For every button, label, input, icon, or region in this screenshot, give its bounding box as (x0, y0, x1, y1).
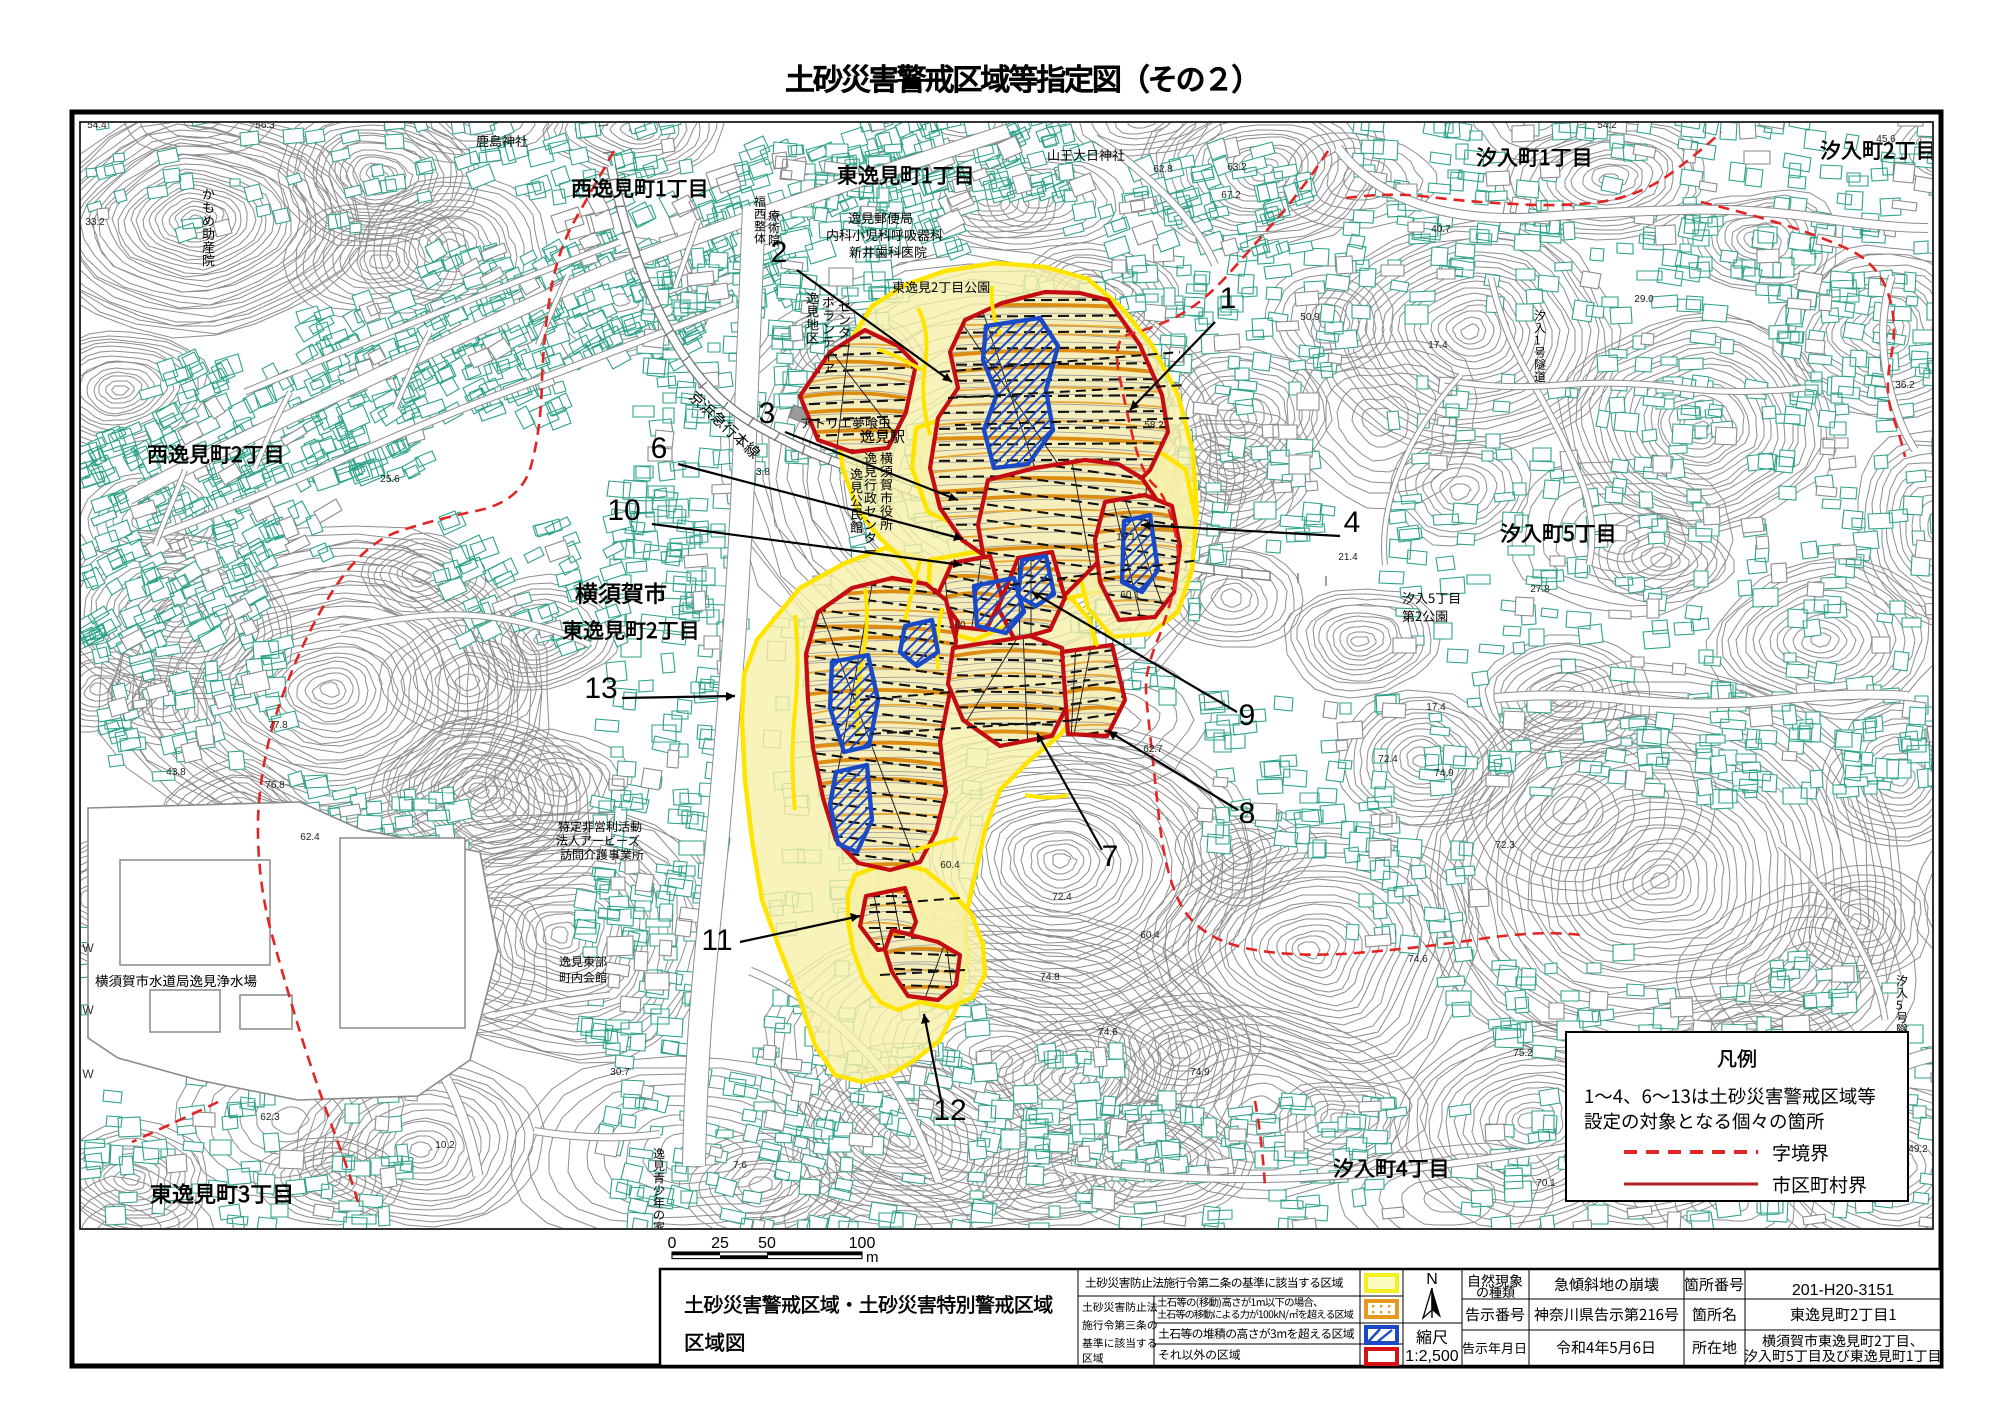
svg-text:201-H20-3151: 201-H20-3151 (1792, 1282, 1894, 1299)
svg-text:36.2: 36.2 (1895, 380, 1915, 391)
svg-text:77.8: 77.8 (268, 720, 288, 731)
svg-text:10: 10 (607, 494, 640, 527)
svg-text:8: 8 (1239, 797, 1256, 830)
svg-text:43.8: 43.8 (166, 767, 186, 778)
svg-text:70.1: 70.1 (1536, 1178, 1556, 1189)
svg-text:W: W (82, 941, 94, 955)
svg-text:62.3: 62.3 (260, 1112, 280, 1123)
svg-text:60.1: 60.1 (1120, 590, 1140, 601)
svg-text:76.8: 76.8 (265, 780, 285, 791)
svg-text:72.4: 72.4 (1378, 754, 1398, 765)
svg-text:W: W (82, 1067, 94, 1081)
svg-text:1: 1 (1220, 282, 1237, 315)
svg-text:62.7: 62.7 (1143, 744, 1163, 755)
svg-text:33.2: 33.2 (85, 217, 105, 228)
svg-text:72.3: 72.3 (1495, 840, 1515, 851)
svg-text:74.6: 74.6 (1098, 1027, 1118, 1038)
svg-text:60.4: 60.4 (1140, 930, 1160, 941)
svg-text:9: 9 (1239, 699, 1256, 732)
svg-text:50.9: 50.9 (1300, 312, 1320, 323)
svg-text:6: 6 (651, 432, 668, 465)
svg-text:62.4: 62.4 (300, 832, 320, 843)
svg-text:N: N (1426, 1271, 1438, 1288)
svg-text:m: m (866, 1249, 879, 1266)
svg-text:50: 50 (758, 1235, 776, 1252)
svg-text:21.4: 21.4 (1338, 552, 1358, 563)
svg-text:27.8: 27.8 (1530, 584, 1550, 595)
svg-text:67.2: 67.2 (1221, 190, 1241, 201)
svg-text:74.6: 74.6 (1408, 954, 1428, 965)
svg-text:74.9: 74.9 (1190, 1067, 1210, 1078)
svg-text:7.6: 7.6 (733, 1160, 747, 1171)
svg-text:3.8: 3.8 (756, 467, 770, 478)
svg-text:W: W (82, 1003, 94, 1017)
svg-text:25: 25 (711, 1235, 729, 1252)
svg-text:29.0: 29.0 (1634, 294, 1654, 305)
svg-text:62.8: 62.8 (1153, 164, 1173, 175)
svg-text:2: 2 (771, 236, 788, 269)
svg-text:75.2: 75.2 (1513, 1048, 1533, 1059)
svg-text:7: 7 (1102, 840, 1119, 873)
svg-text:30.7: 30.7 (610, 1067, 630, 1078)
svg-text:49.2: 49.2 (1908, 1144, 1928, 1155)
svg-text:13: 13 (584, 672, 617, 705)
svg-text:60.4: 60.4 (940, 860, 960, 871)
svg-text:4: 4 (1344, 506, 1361, 539)
svg-text:72.4: 72.4 (1052, 892, 1072, 903)
svg-text:19.1: 19.1 (1116, 532, 1136, 543)
svg-text:12: 12 (933, 1094, 966, 1127)
svg-text:58.2: 58.2 (1144, 420, 1164, 431)
svg-text:25.6: 25.6 (380, 474, 400, 485)
svg-text:3: 3 (759, 397, 776, 430)
svg-text:17.4: 17.4 (1428, 340, 1448, 351)
svg-text:40.7: 40.7 (1431, 224, 1451, 235)
svg-text:11: 11 (701, 924, 732, 957)
svg-text:45.6: 45.6 (1876, 134, 1896, 145)
svg-text:0: 0 (668, 1235, 677, 1252)
svg-text:74.9: 74.9 (1434, 768, 1454, 779)
svg-text:74.8: 74.8 (1040, 972, 1060, 983)
svg-text:63.2: 63.2 (1227, 162, 1247, 173)
svg-text:10.2: 10.2 (435, 1140, 455, 1151)
svg-text:60: 60 (954, 620, 966, 631)
svg-text:1:2,500: 1:2,500 (1405, 1348, 1458, 1365)
svg-text:17.4: 17.4 (1426, 702, 1446, 713)
